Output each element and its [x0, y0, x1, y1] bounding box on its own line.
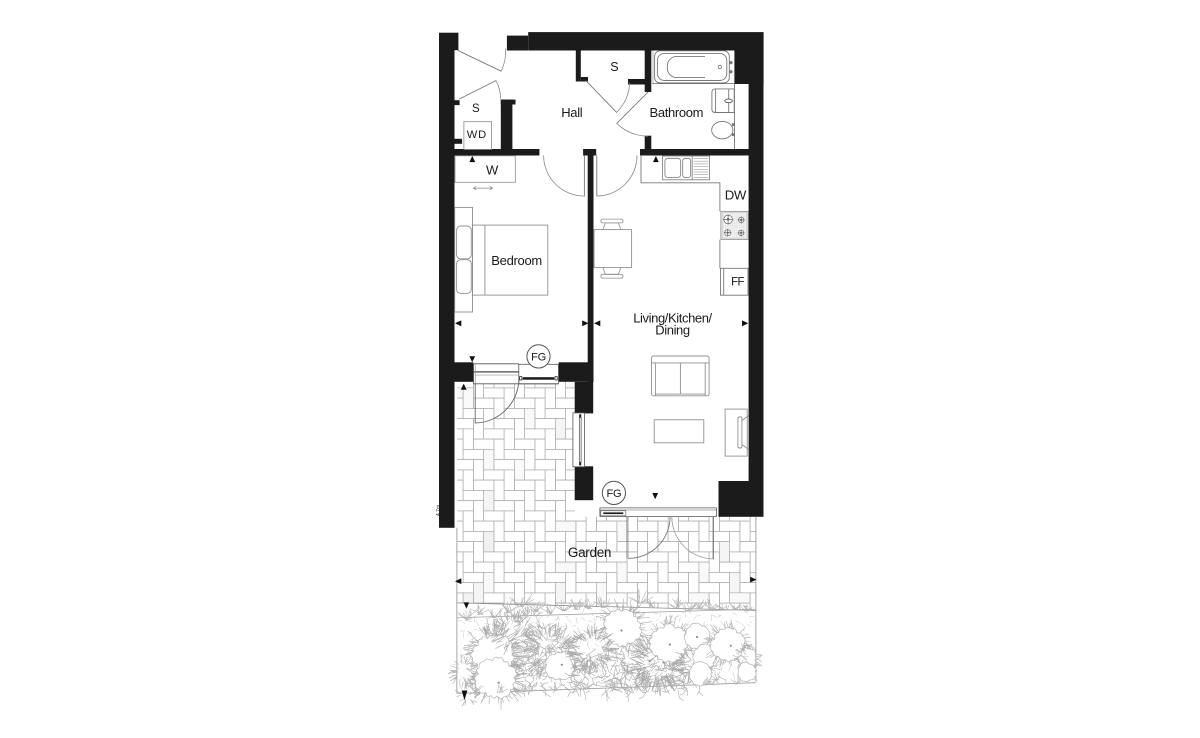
svg-text:S: S	[472, 103, 480, 115]
svg-text:Dining: Dining	[655, 322, 690, 337]
svg-text:W: W	[486, 162, 499, 177]
svg-text:Bathroom: Bathroom	[650, 105, 704, 120]
svg-text:FG: FG	[531, 351, 546, 363]
svg-text:S: S	[610, 60, 618, 74]
svg-text:Hall: Hall	[561, 105, 583, 120]
svg-text:FF: FF	[731, 276, 744, 288]
svg-text:4.7m: 4.7m	[436, 505, 442, 516]
svg-text:DW: DW	[725, 188, 747, 203]
svg-text:FG: FG	[607, 488, 622, 500]
svg-text:WD: WD	[467, 129, 487, 141]
svg-text:Bedroom: Bedroom	[491, 253, 542, 268]
svg-text:Garden: Garden	[568, 545, 611, 560]
